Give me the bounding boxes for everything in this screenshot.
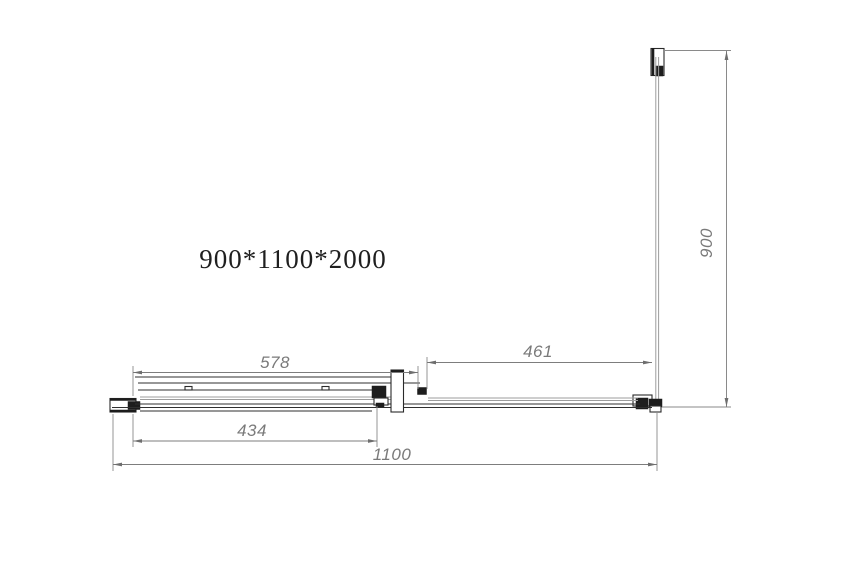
left-glass-clamp [128,402,140,410]
dim-461-arrow-right [643,361,652,365]
corner-bracket-foot [650,406,661,412]
dim-434-arrow-right [368,439,377,443]
drawing-page: 578 461 434 1100 [0,0,866,567]
track-stopper-right [322,387,329,391]
fixed-glass-panel [428,398,638,401]
dimension-434: 434 [133,406,377,447]
dim-578-arrow-right [409,371,418,375]
dim-900-arrow-bottom [725,398,729,407]
dimension-461: 461 [427,342,652,389]
side-glass-panel [656,57,659,407]
dim-1100-arrow-left [113,463,122,467]
front-assembly [110,370,652,412]
size-title: 900*1100*2000 [199,244,387,274]
technical-drawing: 578 461 434 1100 [0,0,866,567]
center-profile-outline [391,370,404,412]
dim-578-label: 578 [260,353,290,372]
dim-1100-label: 1100 [373,445,412,464]
dim-578-arrow-left [133,371,142,375]
left-wall-profile [110,399,140,413]
dimension-1100: 1100 [113,413,657,471]
panel-connector [418,388,427,395]
center-profile [391,370,404,412]
dim-900-arrow-top [725,51,729,60]
dim-434-arrow-left [133,439,142,443]
dim-434-label: 434 [237,421,267,440]
dim-461-arrow-left [427,361,436,365]
dim-900-label: 900 [697,228,716,258]
sliding-door-glass [140,397,391,400]
top-glass-seal [656,66,664,76]
dim-1100-arrow-right [648,463,657,467]
roller-block [372,386,388,407]
track-stopper-left [185,387,192,391]
side-panel [633,48,664,412]
roller-block-body [372,386,386,398]
dim-461-label: 461 [523,342,553,361]
top-wall-profile [651,48,664,76]
dimension-900: 900 [662,51,731,408]
